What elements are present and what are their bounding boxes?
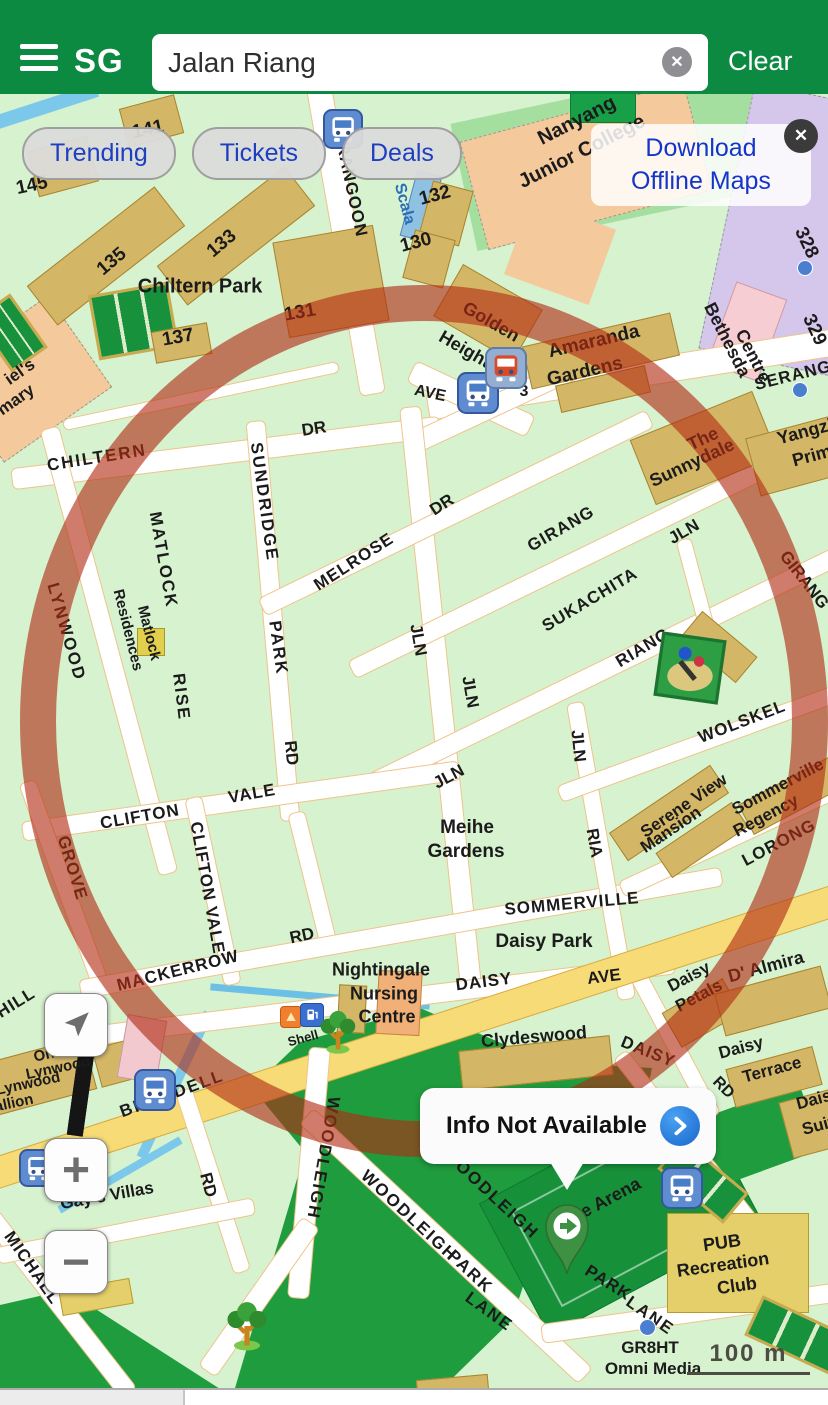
download-offline-maps-button[interactable]: Download Offline Maps (591, 124, 811, 206)
callout-text: Info Not Available (446, 1112, 647, 1140)
chevron-right-icon[interactable] (660, 1106, 700, 1146)
chip-deals[interactable]: Deals (342, 127, 462, 180)
info-dot-icon (639, 1319, 656, 1336)
info-callout[interactable]: Info Not Available (420, 1088, 716, 1164)
app-header: SG ✕ Clear (0, 0, 828, 94)
hamburger-menu-icon[interactable] (20, 44, 58, 80)
bus-stop-icon[interactable] (485, 347, 527, 389)
scale-line (687, 1372, 810, 1375)
search-input[interactable] (152, 34, 708, 91)
info-dot-icon (797, 260, 813, 276)
locate-me-button[interactable] (44, 993, 108, 1057)
offline-card-line1: Download (645, 132, 756, 165)
icons-layer (0, 0, 828, 1405)
tree-icon (221, 1300, 273, 1352)
scale-bar: 100 m (687, 1340, 810, 1375)
bottom-panel-edge[interactable] (0, 1388, 828, 1405)
bus-stop-icon[interactable] (661, 1167, 703, 1209)
info-dot-icon (792, 382, 808, 398)
map-app: 141145SERANGOONScala132130NanyangJunior … (0, 0, 828, 1405)
clear-button[interactable]: Clear (728, 46, 793, 77)
chip-row: Trending Tickets Deals (22, 127, 462, 180)
zoom-out-button[interactable]: − (44, 1230, 108, 1294)
bus-stop-icon[interactable] (134, 1069, 176, 1111)
chip-tickets[interactable]: Tickets (192, 127, 326, 180)
tree-icon (315, 1009, 361, 1055)
chip-trending[interactable]: Trending (22, 127, 176, 180)
shell-station-icon (280, 1006, 302, 1028)
x-circle-icon[interactable]: ✕ (662, 47, 692, 77)
offline-card-line2: Offline Maps (631, 165, 771, 198)
navigation-arrow-icon (59, 1008, 93, 1042)
scale-label: 100 m (687, 1340, 810, 1368)
zoom-in-button[interactable]: + (44, 1138, 108, 1202)
callout-pointer (550, 1162, 584, 1190)
playground-icon (651, 629, 729, 707)
close-icon[interactable]: ✕ (784, 119, 818, 153)
map-pin[interactable] (543, 1202, 591, 1276)
bottom-panel-cell (0, 1390, 185, 1405)
app-logo: SG (74, 42, 124, 80)
